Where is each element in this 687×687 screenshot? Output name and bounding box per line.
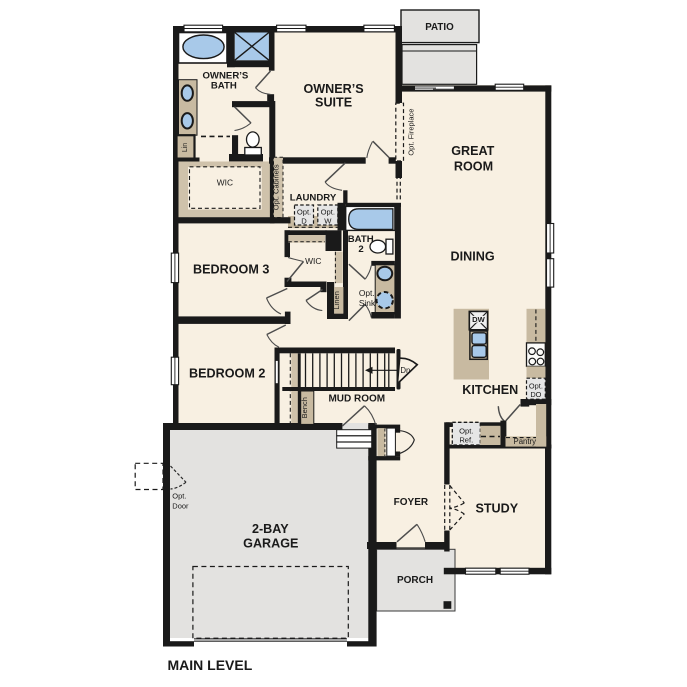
svg-text:Opt. Cabinets: Opt. Cabinets [271,164,280,210]
svg-text:2: 2 [358,244,363,255]
svg-text:MUD ROOM: MUD ROOM [328,394,385,405]
svg-text:Bench: Bench [300,397,309,418]
svg-text:BEDROOM 2: BEDROOM 2 [189,366,265,380]
svg-text:PATIO: PATIO [425,22,454,33]
svg-text:PORCH: PORCH [397,575,433,586]
svg-text:WIC: WIC [305,256,321,266]
svg-text:Door: Door [172,501,189,510]
svg-text:Dn: Dn [400,366,410,375]
svg-text:SUITE: SUITE [315,96,352,110]
svg-text:DO: DO [530,390,541,399]
svg-text:Linen: Linen [332,291,341,309]
svg-text:GARAGE: GARAGE [243,536,298,550]
svg-text:Opt.: Opt. [321,208,335,217]
svg-text:DW: DW [472,315,485,324]
svg-text:BEDROOM 3: BEDROOM 3 [193,262,269,276]
svg-text:GREAT: GREAT [451,144,494,158]
svg-text:LAUNDRY: LAUNDRY [290,192,337,203]
svg-text:Opt.: Opt. [297,208,311,217]
svg-text:STUDY: STUDY [475,502,518,516]
svg-text:Opt.: Opt. [459,427,473,436]
svg-text:BATH: BATH [211,81,237,92]
svg-text:DINING: DINING [451,249,495,263]
svg-text:2-BAY: 2-BAY [252,522,289,536]
svg-text:OWNER’S: OWNER’S [304,82,364,96]
svg-text:Lin: Lin [182,143,189,152]
svg-text:ROOM: ROOM [454,159,493,173]
svg-text:Pantry: Pantry [514,437,537,446]
svg-text:Ref.: Ref. [459,436,473,445]
svg-text:Sink: Sink [359,298,376,308]
svg-text:Opt. Fireplace: Opt. Fireplace [407,109,416,156]
svg-text:WIC: WIC [217,177,233,187]
svg-text:Opt.: Opt. [172,492,186,501]
svg-text:KITCHEN: KITCHEN [462,383,518,397]
svg-text:W: W [324,217,332,226]
svg-text:Opt.: Opt. [359,288,375,298]
svg-text:MAIN LEVEL: MAIN LEVEL [168,657,253,673]
svg-text:D: D [301,217,307,226]
svg-text:FOYER: FOYER [394,497,429,508]
